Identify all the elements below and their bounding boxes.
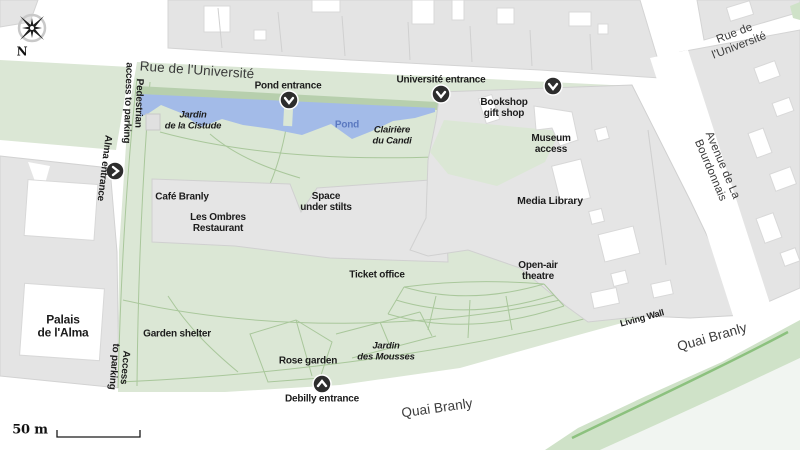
quai-branly-museum-map: Rue de l'Université Rue de l'Université … (0, 0, 800, 450)
map-canvas (0, 0, 800, 450)
palais-alma-building (20, 283, 105, 360)
universite-entrance-marker (432, 85, 450, 103)
pond-entrance-marker (280, 91, 298, 109)
palais-north-building (24, 180, 98, 241)
compass-rose (19, 15, 45, 41)
garden-shed (146, 114, 160, 130)
bourdonnais-entrance-marker (544, 77, 562, 95)
debilly-entrance-marker (313, 375, 331, 393)
alma-entrance-marker (106, 162, 124, 180)
green-block-topleft (0, 60, 130, 150)
